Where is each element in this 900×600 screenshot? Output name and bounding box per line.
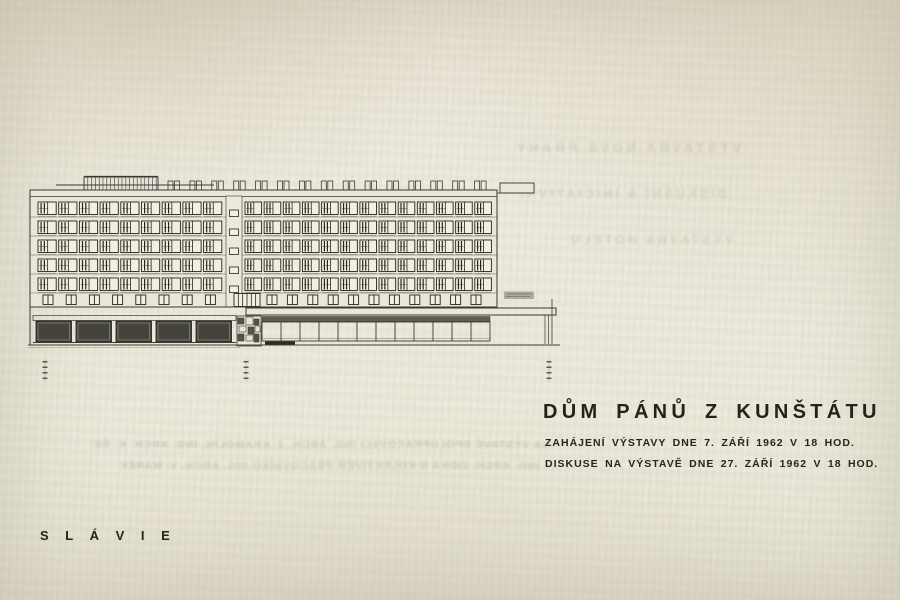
scanned-invitation-card: VÝSTAVBA NOVÉ PRAHY DISKUSNÍ A INICIATIV… xyxy=(0,0,900,600)
subtitle-line-2: DISKUSE NA VÝSTAVĚ DNE 27. ZÁŘÍ 1962 V 1… xyxy=(545,458,878,470)
subtitle-line-1: ZAHÁJENÍ VÝSTAVY DNE 7. ZÁŘÍ 1962 V 18 H… xyxy=(545,437,855,449)
footer-label: S L Á V I E xyxy=(40,528,176,543)
building-elevation-drawing xyxy=(0,0,900,600)
page-title: DŮM PÁNŮ Z KUNŠTÁTU xyxy=(543,401,881,424)
